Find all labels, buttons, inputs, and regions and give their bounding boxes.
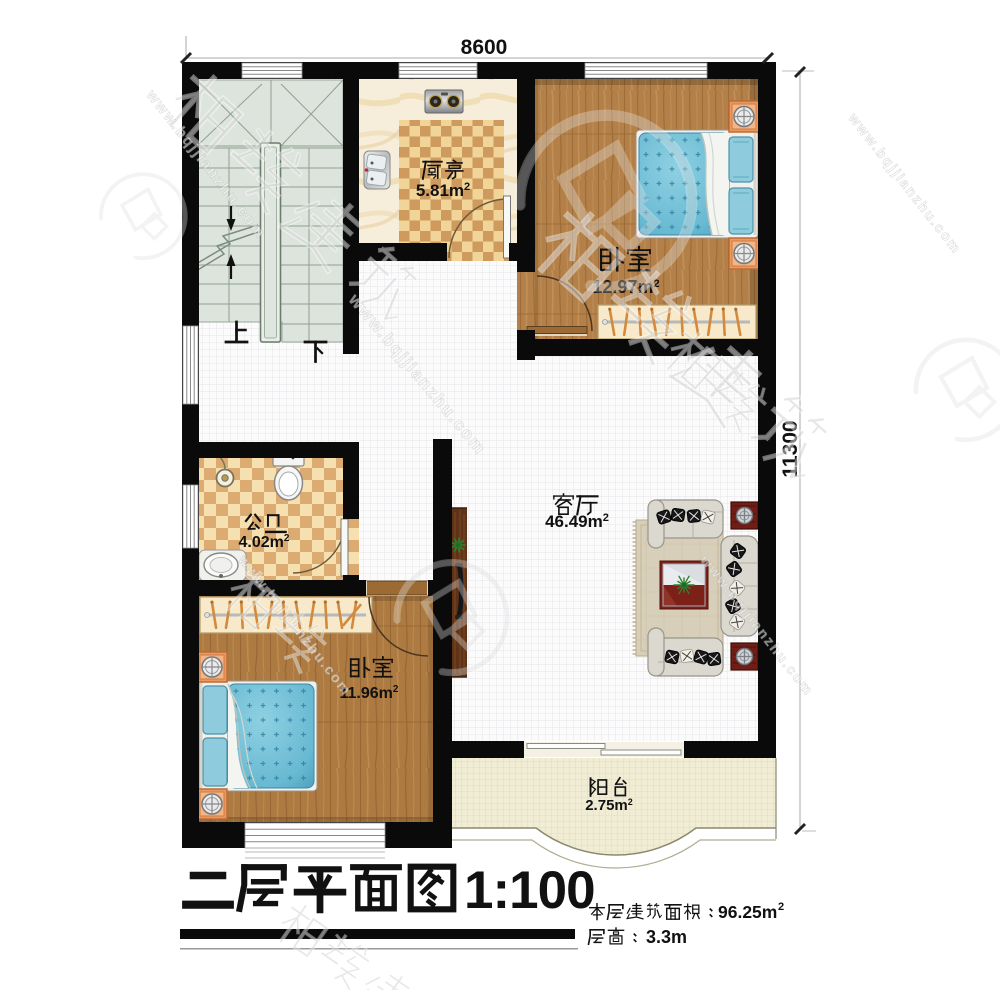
svg-text:46.49m2: 46.49m2 xyxy=(545,512,609,531)
svg-text:96.25m: 96.25m xyxy=(718,902,777,922)
svg-text:2: 2 xyxy=(778,901,784,913)
svg-text:2.75m2: 2.75m2 xyxy=(585,797,633,814)
svg-text:3.3m: 3.3m xyxy=(646,927,687,947)
svg-text:8600: 8600 xyxy=(461,36,508,59)
svg-text:4.02m2: 4.02m2 xyxy=(239,533,290,551)
svg-text:1:100: 1:100 xyxy=(464,861,595,920)
svg-text:5.81m2: 5.81m2 xyxy=(416,181,470,200)
